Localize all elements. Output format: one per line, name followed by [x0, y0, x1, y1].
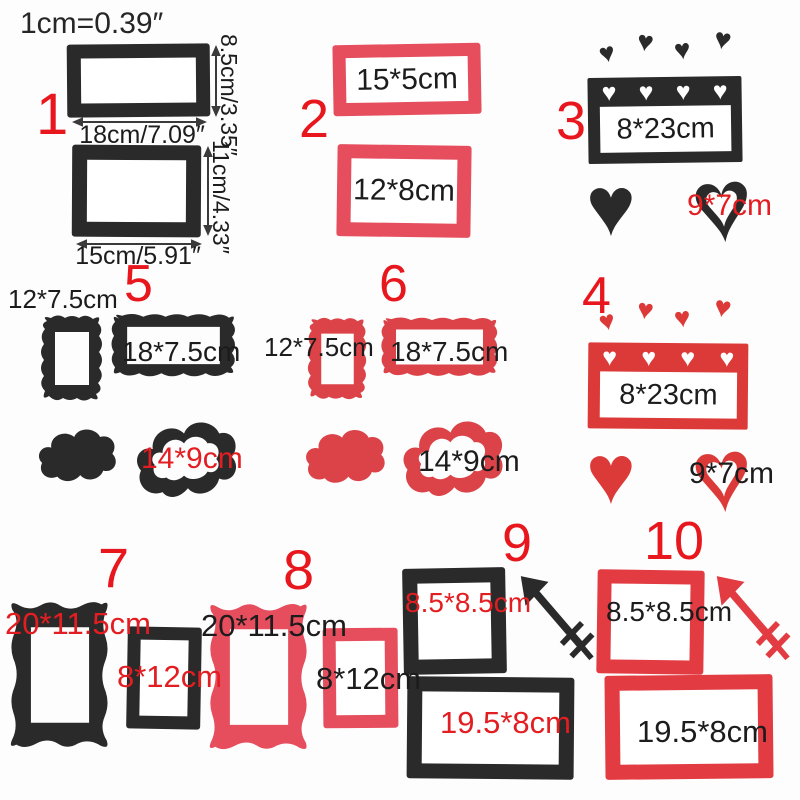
item10-square-frame-label: 8.5*8.5cm [606, 597, 732, 626]
heart-cutout-icon: ♥ [719, 343, 734, 373]
item6-landscape-frame-label: 18*7.5cm [390, 337, 508, 366]
heart-cutout-icon: ♥ [675, 77, 690, 107]
item7-bracket-frame-label: 20*11.5cm [5, 608, 151, 641]
solid-cloud-icon [303, 423, 389, 485]
item2-top-frame-label: 15*5cm [356, 63, 458, 96]
item2-top-frame: 15*5cm [332, 43, 481, 117]
item1-number: 1 [36, 86, 68, 144]
item1-bottom-frame [72, 145, 201, 238]
item6-cloud-frame-label: 14*9cm [418, 446, 520, 478]
scalloped-portrait-frame [38, 313, 106, 403]
heart-icon: ♥ [635, 295, 655, 325]
item5-number: 5 [124, 258, 153, 310]
item1-bottom-frame-height-label: 11cm/4.33″ [209, 140, 233, 254]
item10-number: 10 [644, 514, 704, 568]
item4-banner-frame: ♥ ♥ ♥ ♥ 8*23cm [588, 342, 749, 429]
item2-number: 2 [299, 92, 329, 146]
heart-icon: ♥ [712, 25, 734, 57]
item1-top-frame [67, 43, 211, 117]
heart-icon: ♥ [712, 293, 734, 325]
item1-top-frame-height-label: 8.5cm/3.35″ [217, 34, 241, 156]
scale-note: 1cm=0.39″ [20, 8, 163, 40]
solid-heart-icon: ♥ [586, 164, 636, 248]
heart-icon: ♥ [596, 39, 617, 69]
item4-banner-label: 8*23cm [619, 379, 718, 410]
item3-heart-frame-label: 9*7cm [687, 190, 772, 222]
heart-icon: ♥ [673, 303, 692, 333]
heart-cutout-icon: ♥ [638, 77, 653, 107]
item10-wide-frame-label: 19.5*8cm [637, 716, 768, 749]
item9-square-frame-label: 8.5*8.5cm [405, 588, 531, 617]
item9-wide-frame-label: 19.5*8cm [440, 707, 571, 740]
item2-bottom-frame-label: 12*8cm [353, 175, 455, 208]
item8-number: 8 [283, 542, 314, 598]
item6-number: 6 [379, 258, 408, 310]
heart-icon: ♥ [635, 27, 655, 57]
item4-heart-frame-label: 9*7cm [689, 458, 774, 490]
product-measurement-image: 1cm=0.39″ 1 18cm/7.09″ 8.5cm/3.35″ 15cm/… [0, 0, 800, 800]
banner-heart-cutouts: ♥ ♥ ♥ ♥ [601, 76, 727, 108]
heart-icon: ♥ [673, 35, 692, 65]
solid-cloud-icon [36, 421, 120, 485]
item7-number: 7 [98, 540, 129, 596]
item6-portrait-frame-label: 12*7.5cm [264, 334, 374, 361]
item9-square-frame [402, 567, 507, 675]
heart-cutout-icon: ♥ [641, 343, 656, 373]
item3-number: 3 [556, 94, 586, 148]
banner-heart-cutouts: ♥ ♥ ♥ ♥ [602, 342, 734, 373]
heart-cutout-icon: ♥ [602, 342, 617, 372]
item7-small-frame-label: 8*12cm [117, 661, 222, 694]
item1-top-frame-width-label: 18cm/7.09″ [78, 122, 206, 148]
item5-landscape-frame-label: 18*7.5cm [122, 337, 240, 366]
heart-cutout-icon: ♥ [680, 343, 695, 373]
item8-bracket-frame-label: 20*11.5cm [201, 610, 347, 643]
heart-cutout-icon: ♥ [601, 78, 616, 108]
heart-cutout-icon: ♥ [713, 76, 728, 106]
item2-bottom-frame: 12*8cm [336, 144, 471, 238]
item4-number: 4 [582, 270, 611, 322]
solid-heart-icon: ♥ [586, 432, 636, 516]
item5-portrait-frame-label: 12*7.5cm [8, 286, 118, 313]
item9-number: 9 [502, 516, 532, 570]
item3-banner-label: 8*23cm [616, 113, 715, 145]
item8-small-frame-label: 8*12cm [316, 663, 421, 696]
item5-cloud-frame-label: 14*9cm [141, 443, 243, 475]
